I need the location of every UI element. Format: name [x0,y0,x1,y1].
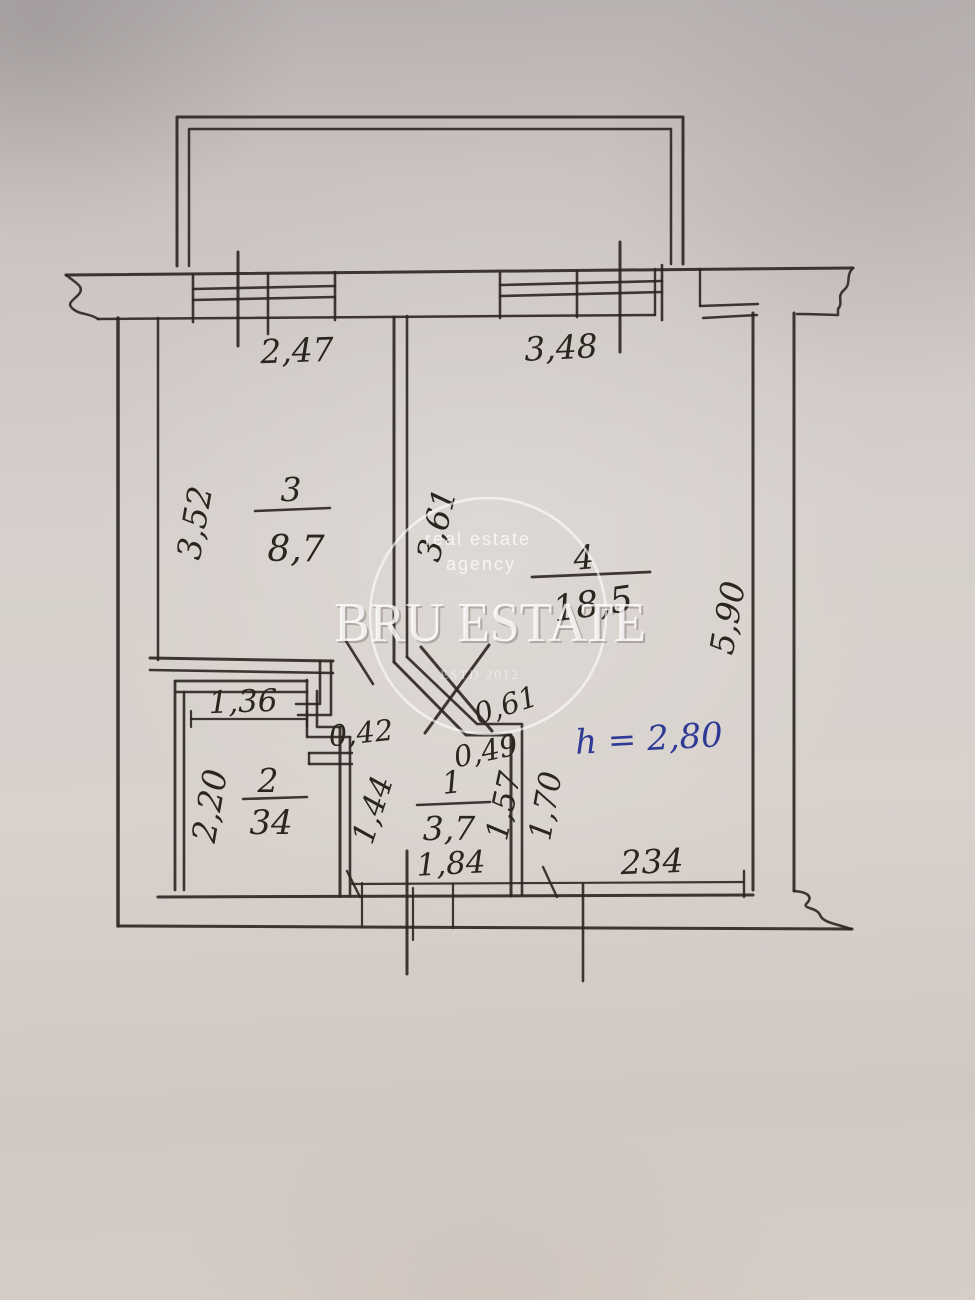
dim-bottom-right-label: 234 [619,841,684,882]
floor-plan-drawing: 2,47 3,48 3,52 3,61 5,90 1,36 2,20 0,42 … [0,0,975,1300]
dim-room2-depth-label: 2,20 [184,766,235,846]
top-wall-inner-face-right-b [703,315,757,318]
room2-label-underline [243,797,307,799]
room1-label-underline [417,802,490,805]
watermark-tagline-line1: real estate [425,529,531,549]
dim-room2-width-label: 1,36 [208,683,278,721]
watermark-tagline-line2: agency [446,554,516,574]
wall-break-mark-top-left [66,275,98,319]
room1-number: 1 [440,764,463,802]
ceiling-height-note: h = 2,80 [574,715,724,763]
room3-bottom-wall-a [150,658,333,661]
dim-right-side-label: 5,90 [702,578,753,657]
dim-window-right-label: 3,48 [523,326,598,369]
balcony [177,117,683,266]
room2-area: 34 [249,803,292,843]
watermark-brand: BRU ESTATE [334,592,646,654]
window-glazing-line [193,297,335,300]
scanned-floor-plan-photo: 2,47 3,48 3,52 3,61 5,90 1,36 2,20 0,42 … [0,0,975,1300]
watermark-subtext: ESTD 2012 [440,667,520,682]
room1-area: 3,7 [423,809,475,848]
top-wall-inner-face-right-a [700,304,758,306]
dim-hall-left-label: 1,44 [345,772,401,849]
dim-room3-depth-label: 3,52 [169,483,220,562]
room4-number: 4 [571,537,596,578]
window-glazing-line [500,281,662,285]
room2-number: 2 [257,761,279,800]
dim-window-left-label: 2,47 [259,330,335,372]
wall-break-mark-bottom-right [794,891,851,929]
window-glazing-line [193,286,335,289]
top-wall-inner-face [98,315,655,319]
wall-break-mark-top-right [797,268,853,315]
room3-bottom-wall-b [150,670,333,673]
bottom-wall-outer-face [120,926,852,929]
room3-area: 8,7 [267,529,324,570]
window-glazing-line [500,292,662,296]
bottom-dimension-line [352,882,744,884]
bottom-wall-inner-face [158,895,753,897]
balcony-outer-wall [177,117,683,266]
balcony-inner-wall [189,129,671,266]
dim-hall-width-label: 1,84 [416,844,487,884]
top-wall-outer-face [66,268,853,275]
room3-label-underline [255,508,330,511]
dim-niche-label: 0,42 [327,713,395,754]
niche-wall-b [298,661,331,715]
room3-number: 3 [281,470,302,509]
dim-nook-height-label: 1,70 [522,769,569,843]
dim-middle-wall-label: 3,61 [409,484,465,565]
